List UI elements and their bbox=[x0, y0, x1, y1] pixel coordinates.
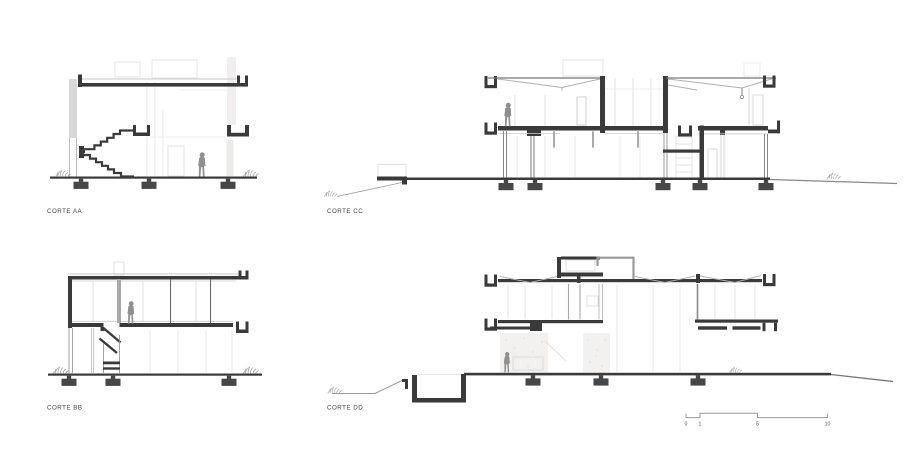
section-bb-floor-slab bbox=[68, 322, 249, 334]
grass-icon bbox=[243, 170, 259, 177]
section-cc-roof bbox=[485, 76, 777, 134]
section-dd: CORTE DD bbox=[327, 257, 893, 412]
section-aa-stair bbox=[79, 131, 134, 177]
scale-tick-0: 0 bbox=[685, 422, 688, 428]
section-aa-footings bbox=[74, 179, 236, 189]
scale-tick-10: 10 bbox=[825, 422, 831, 428]
section-aa-label: CORTE AA bbox=[47, 208, 83, 215]
scale-bar: 0 1 5 10 bbox=[685, 413, 831, 427]
grass-icon bbox=[53, 367, 69, 374]
grass-icon bbox=[328, 387, 342, 393]
roof-drain-icon bbox=[740, 95, 743, 98]
section-aa-roof bbox=[78, 75, 248, 88]
hanger-rods bbox=[554, 132, 638, 147]
grass-icon bbox=[324, 191, 337, 197]
section-dd-roof bbox=[485, 274, 776, 287]
person-figure bbox=[198, 152, 205, 177]
section-bb-label: CORTE BB bbox=[47, 405, 83, 412]
section-bb-lower-walls bbox=[69, 328, 94, 373]
section-dd-pool bbox=[328, 374, 466, 403]
grass-icon bbox=[827, 173, 841, 179]
section-cc-floor-band bbox=[485, 121, 781, 148]
person-figure bbox=[127, 301, 134, 324]
scale-tick-1: 1 bbox=[699, 422, 702, 428]
section-aa-right-channel bbox=[227, 125, 249, 137]
section-aa: CORTE AA bbox=[47, 57, 259, 215]
section-dd-clerestory bbox=[557, 257, 634, 280]
grass-icon bbox=[729, 367, 741, 373]
grass-icon bbox=[55, 170, 71, 177]
section-dd-footings bbox=[526, 375, 706, 385]
grass-icon bbox=[243, 367, 259, 374]
section-bb-footings bbox=[62, 376, 237, 386]
section-aa-mid-channel bbox=[133, 125, 150, 136]
section-aa-left-wall bbox=[69, 79, 77, 177]
section-dd-floor-band bbox=[485, 319, 779, 332]
sections-drawing-canvas: CORTE AA bbox=[0, 0, 920, 458]
section-dd-label: CORTE DD bbox=[327, 405, 363, 412]
section-cc-footings bbox=[499, 180, 774, 190]
section-bb-ground bbox=[48, 367, 262, 376]
section-aa-background-lines bbox=[115, 57, 236, 176]
section-bb-stair bbox=[100, 329, 121, 374]
sections-sheet: CORTE AA bbox=[0, 0, 920, 458]
section-cc-label: CORTE CC bbox=[327, 208, 363, 215]
section-bb: CORTE BB bbox=[47, 262, 262, 412]
person-figure bbox=[504, 103, 511, 127]
section-cc: CORTE CC bbox=[324, 60, 897, 215]
section-bb-roof bbox=[68, 271, 249, 280]
background-stair-beyond bbox=[676, 135, 692, 178]
scale-tick-5: 5 bbox=[756, 422, 759, 428]
section-cc-ground bbox=[324, 165, 897, 197]
